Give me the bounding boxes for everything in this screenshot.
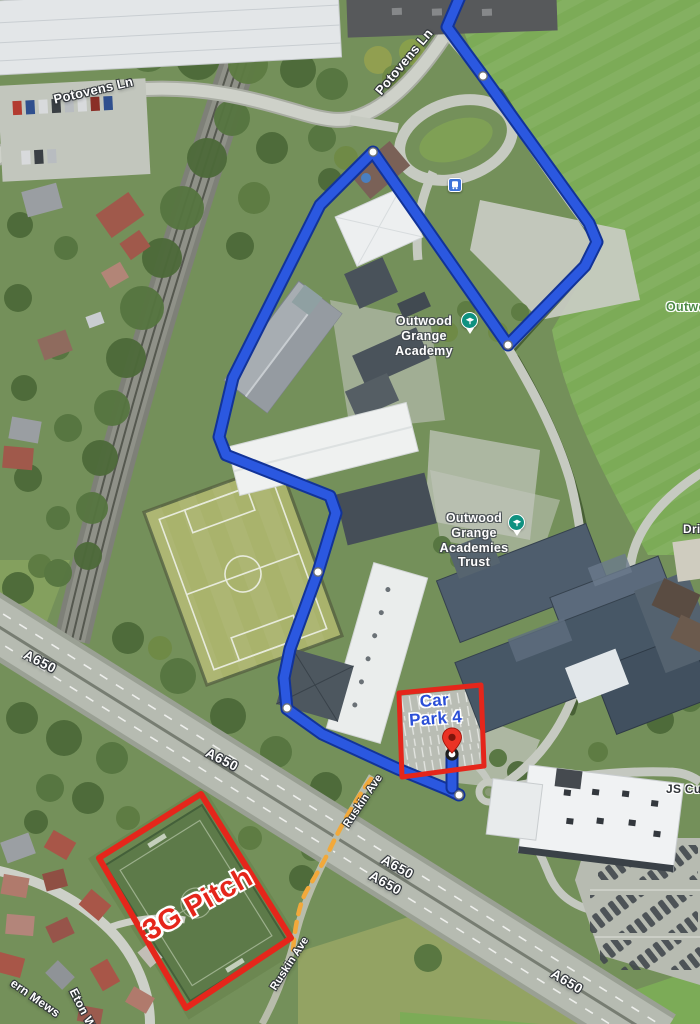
graduation-cap-icon: [461, 312, 478, 329]
waypoint-dot: [455, 791, 463, 799]
satellite-map[interactable]: Potovens Ln Potovens Ln Outwood Grange A…: [0, 0, 700, 1024]
area-label-outwood: Outwoo: [666, 300, 700, 314]
poi-label-outwood-grange-academy[interactable]: Outwood Grange Academy: [374, 314, 474, 358]
waypoint-dot: [504, 341, 512, 349]
red-map-pin-icon: [441, 727, 463, 754]
annotation-car-park-4: Car Park 4: [405, 690, 465, 731]
bus-stop-icon[interactable]: [448, 178, 462, 192]
waypoint-dot: [314, 568, 322, 576]
poi-label-js-cur[interactable]: JS Cur: [666, 782, 700, 796]
school-pin-trust[interactable]: [508, 514, 525, 536]
waypoint-dot: [283, 704, 291, 712]
road-label-drive: Driv: [683, 522, 700, 536]
waypoint-dot: [479, 72, 487, 80]
school-pin-academy[interactable]: [461, 312, 478, 334]
destination-pin[interactable]: [441, 727, 463, 759]
graduation-cap-icon: [508, 514, 525, 531]
map-graphics: [0, 0, 700, 1024]
bus-icon: [450, 180, 460, 190]
waypoint-dot: [369, 148, 377, 156]
